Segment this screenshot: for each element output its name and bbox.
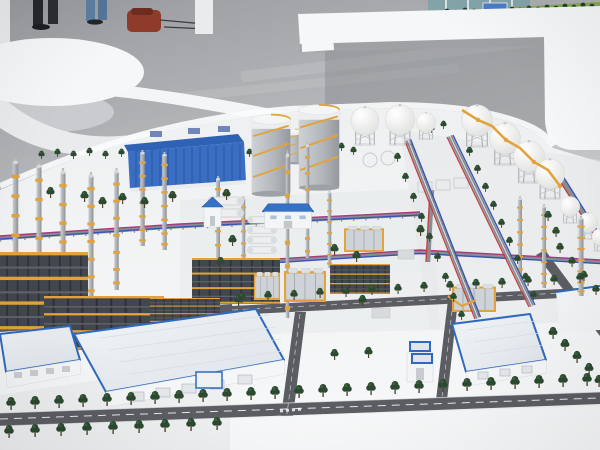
photo-refinery-scale-model [0, 0, 600, 450]
round-tank [381, 151, 395, 165]
bench-leg [300, 14, 334, 52]
pillar [195, 0, 213, 34]
round-tank [363, 153, 377, 167]
warehouse-right [452, 314, 547, 386]
bench-leg-right [544, 34, 600, 150]
canopy [196, 372, 222, 388]
